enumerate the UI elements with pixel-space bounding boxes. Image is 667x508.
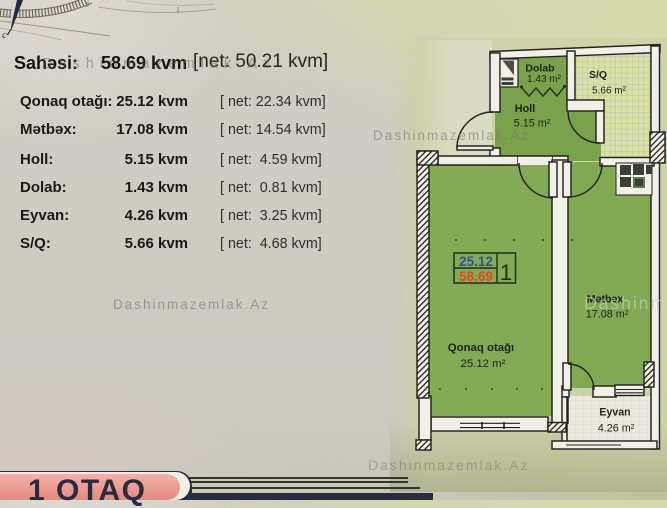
svg-text:25.12: 25.12 xyxy=(459,254,493,269)
svg-text:Qonaq otağı: Qonaq otağı xyxy=(448,342,514,354)
svg-text:25.12 m²: 25.12 m² xyxy=(461,358,506,370)
svg-text:4.26 m²: 4.26 m² xyxy=(598,423,635,435)
svg-text:3: 3 xyxy=(85,2,89,9)
svg-text:c: c xyxy=(2,29,7,41)
svg-text:S/Q: S/Q xyxy=(589,69,607,81)
svg-text:5.66 m²: 5.66 m² xyxy=(592,86,627,97)
svg-text:1.43 m²: 1.43 m² xyxy=(527,74,562,85)
svg-text:1: 1 xyxy=(500,260,512,285)
svg-text:Dolab: Dolab xyxy=(525,63,554,75)
svg-text:58.69: 58.69 xyxy=(459,269,493,284)
svg-text:Holl: Holl xyxy=(515,103,535,115)
svg-text:1: 1 xyxy=(176,7,180,14)
svg-text:Eyvan: Eyvan xyxy=(599,407,630,419)
